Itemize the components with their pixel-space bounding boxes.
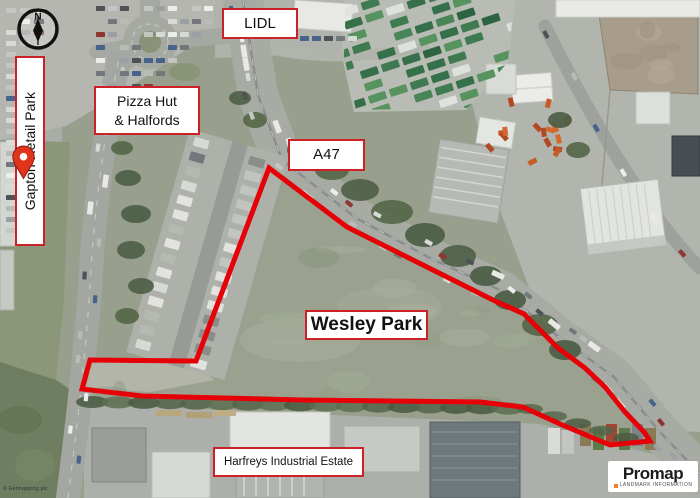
promap-logo: Promap LANDMARK INFORMATION [608,461,698,492]
north-compass: N [15,6,61,52]
promap-brand-text: Promap [623,465,683,482]
label-a47: A47 [288,139,365,171]
label-lidl-text: LIDL [244,14,276,34]
label-lidl: LIDL [222,8,298,39]
landmark-subtitle-text: LANDMARK INFORMATION [620,483,693,488]
compass-north-label: N [34,12,41,23]
landmark-accent-icon [614,484,618,488]
label-wesley-park: Wesley Park [305,310,428,340]
label-pizza-line2: & Halfords [114,111,179,129]
aerial-credit: © Getmapping plc [3,486,48,492]
label-harfreys-text: Harfreys Industrial Estate [224,455,353,470]
map-canvas: Gapton Retail Park LIDL Pizza Hut & Half… [0,0,700,498]
label-pizza-hut-halfords: Pizza Hut & Halfords [94,86,200,135]
site-boundary-polygon [82,168,650,445]
site-boundary-overlay [0,0,700,498]
label-harfreys-industrial-estate: Harfreys Industrial Estate [213,447,364,477]
label-pizza-line1: Pizza Hut [117,92,177,110]
label-wesley-park-text: Wesley Park [311,313,423,338]
location-pin-icon [12,145,35,180]
label-a47-text: A47 [313,145,340,165]
